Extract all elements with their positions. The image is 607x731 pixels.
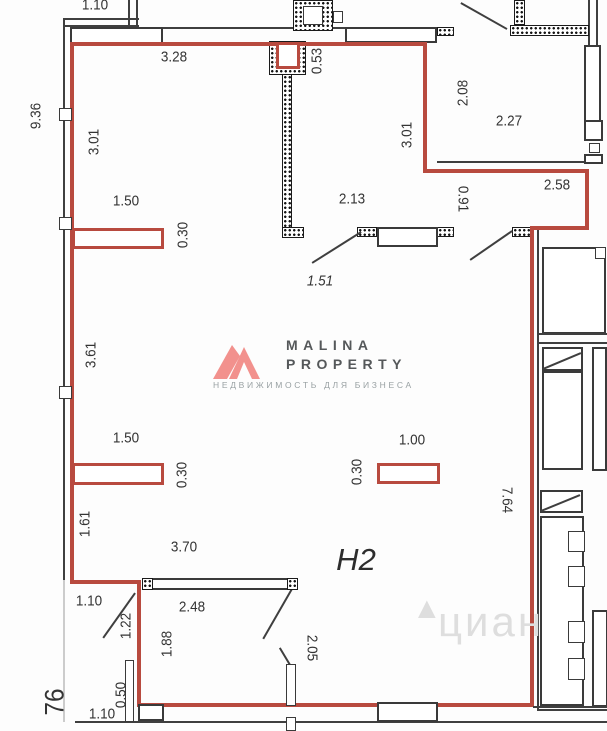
dimension-label: 1.88 [159,631,176,657]
wall-right-tall [584,45,601,125]
core-hatch-1 [568,531,585,552]
dimension-label: 3.28 [161,49,187,66]
wall-topleft-vert-b [136,0,138,26]
top-hatch-vert [514,0,525,25]
lintel-top-mid [345,27,437,43]
logo-mountain-icon [212,340,278,382]
dimension-label: 3.01 [399,122,416,148]
dimension-label: 1.10 [89,706,115,723]
dimension-label: 2.58 [544,177,570,194]
dimension-label: 0.91 [455,186,472,212]
dimension-label: 3.01 [86,129,103,155]
wall-left-outer [63,18,65,580]
dimension-label: 1.10 [82,0,108,14]
core-hatch-2 [568,566,585,587]
column-wall-vert [282,74,292,228]
red-partition-lower [72,463,164,485]
window-break-2 [59,217,72,230]
dimension-label: 3.61 [83,342,100,368]
dimension-label: 0.30 [174,462,191,488]
core-right-col-upper [592,347,607,471]
core-shaft-mid [542,371,583,470]
core-notch [595,247,606,259]
wall-right-seg-c [584,154,603,164]
bottom-opening-left [138,704,164,721]
dimension-label: 2.05 [304,635,321,661]
red-niche-right [297,42,300,69]
niche-inner [278,45,297,68]
window-break-3 [59,386,72,399]
wall-topright-vert-b [596,0,598,45]
door-leaf-151-left [312,231,362,263]
dimension-label: 1.50 [113,193,139,210]
wall-room227-bottom [437,161,600,163]
wall-right-seg-b [589,143,600,153]
core-corridor-top [537,333,607,335]
door-jamb-right [437,227,454,237]
bottom-opening-mid [377,702,438,722]
dimension-label: 2.08 [455,80,472,106]
corridor-jamb [512,227,532,237]
dimension-label: 1.10 [76,593,102,610]
window-break-1 [59,108,72,121]
dimension-label: 1.61 [77,511,94,537]
dimension-label: 1.51 [307,273,333,290]
dimension-label: 1.00 [399,432,425,449]
red-niche-left [276,42,279,69]
dimension-label: 2.13 [339,191,365,208]
door-post-lower [286,717,296,731]
logo-name-line1: MALINA [286,337,373,353]
dimension-label: 3.70 [171,539,197,556]
door-swing-topright [461,2,508,29]
red-left-wall [70,42,74,584]
red-bottom-wall [137,703,534,707]
dimension-label: 2.27 [496,113,522,130]
logo-name-line2: PROPERTY [286,356,407,372]
door-post-upper [286,664,296,706]
top-hatch-a [437,27,454,36]
red-top-wall [70,42,427,46]
door-threshold-151 [377,227,438,247]
dimension-label: 0.30 [175,222,192,248]
vent-shaft-tab [333,11,343,23]
red-partition-upper [72,228,164,249]
red-column [377,463,440,484]
corridor-wall-bottom [142,578,298,590]
dimension-label: 0.30 [349,459,366,485]
corridor-wall-cap-right [287,578,298,590]
dimension-label: 2.48 [179,599,205,616]
wall-topright-vert-a [588,0,590,45]
dimension-label: 9.36 [28,103,45,129]
core-shaft-upper [542,247,606,334]
dimension-label: 0.50 [113,682,130,708]
bottom-wall-outer [75,721,607,723]
door-leaf-151-right [470,230,513,260]
wall-right-seg-a [584,120,603,141]
watermark-text: циан [438,598,544,646]
core-hatch-3 [568,621,585,643]
wall-topleft-vert-a [128,0,130,26]
dimension-label: 76 [40,688,71,715]
top-hatch-b [510,25,589,36]
bottom-wall-inner-right [533,706,607,708]
core-right-col-lower [592,610,607,707]
red-corridor-right [585,169,589,230]
red-corridor-bottom [530,226,589,230]
dimension-label: 0.53 [309,48,326,74]
core-hatch-4 [568,658,585,680]
vent-shaft-inner [303,6,323,25]
corridor-wall-cap-left [142,578,153,590]
logo-tagline: НЕДВИЖИМОСТЬ ДЛЯ БИЗНЕСА [213,380,414,390]
red-corridor-top [423,169,589,173]
red-right-vert-upper [423,42,427,173]
core-corridor-bottom [537,342,607,344]
dimension-label: 1.50 [113,430,139,447]
unit-label: H2 [336,542,376,578]
floor-plan: ▲ циан H2 MALINA PROPERTY НЕДВИЖИМОСТЬ Д… [0,0,607,731]
column-wall-foot [282,227,304,238]
dimension-label: 1.22 [118,613,135,639]
door-swing-205 [262,585,294,639]
red-left-vert-lower [137,580,141,707]
dimension-label: 7.64 [499,487,516,513]
core-bottom-line [537,709,607,711]
red-lowleft-horiz [70,580,141,584]
